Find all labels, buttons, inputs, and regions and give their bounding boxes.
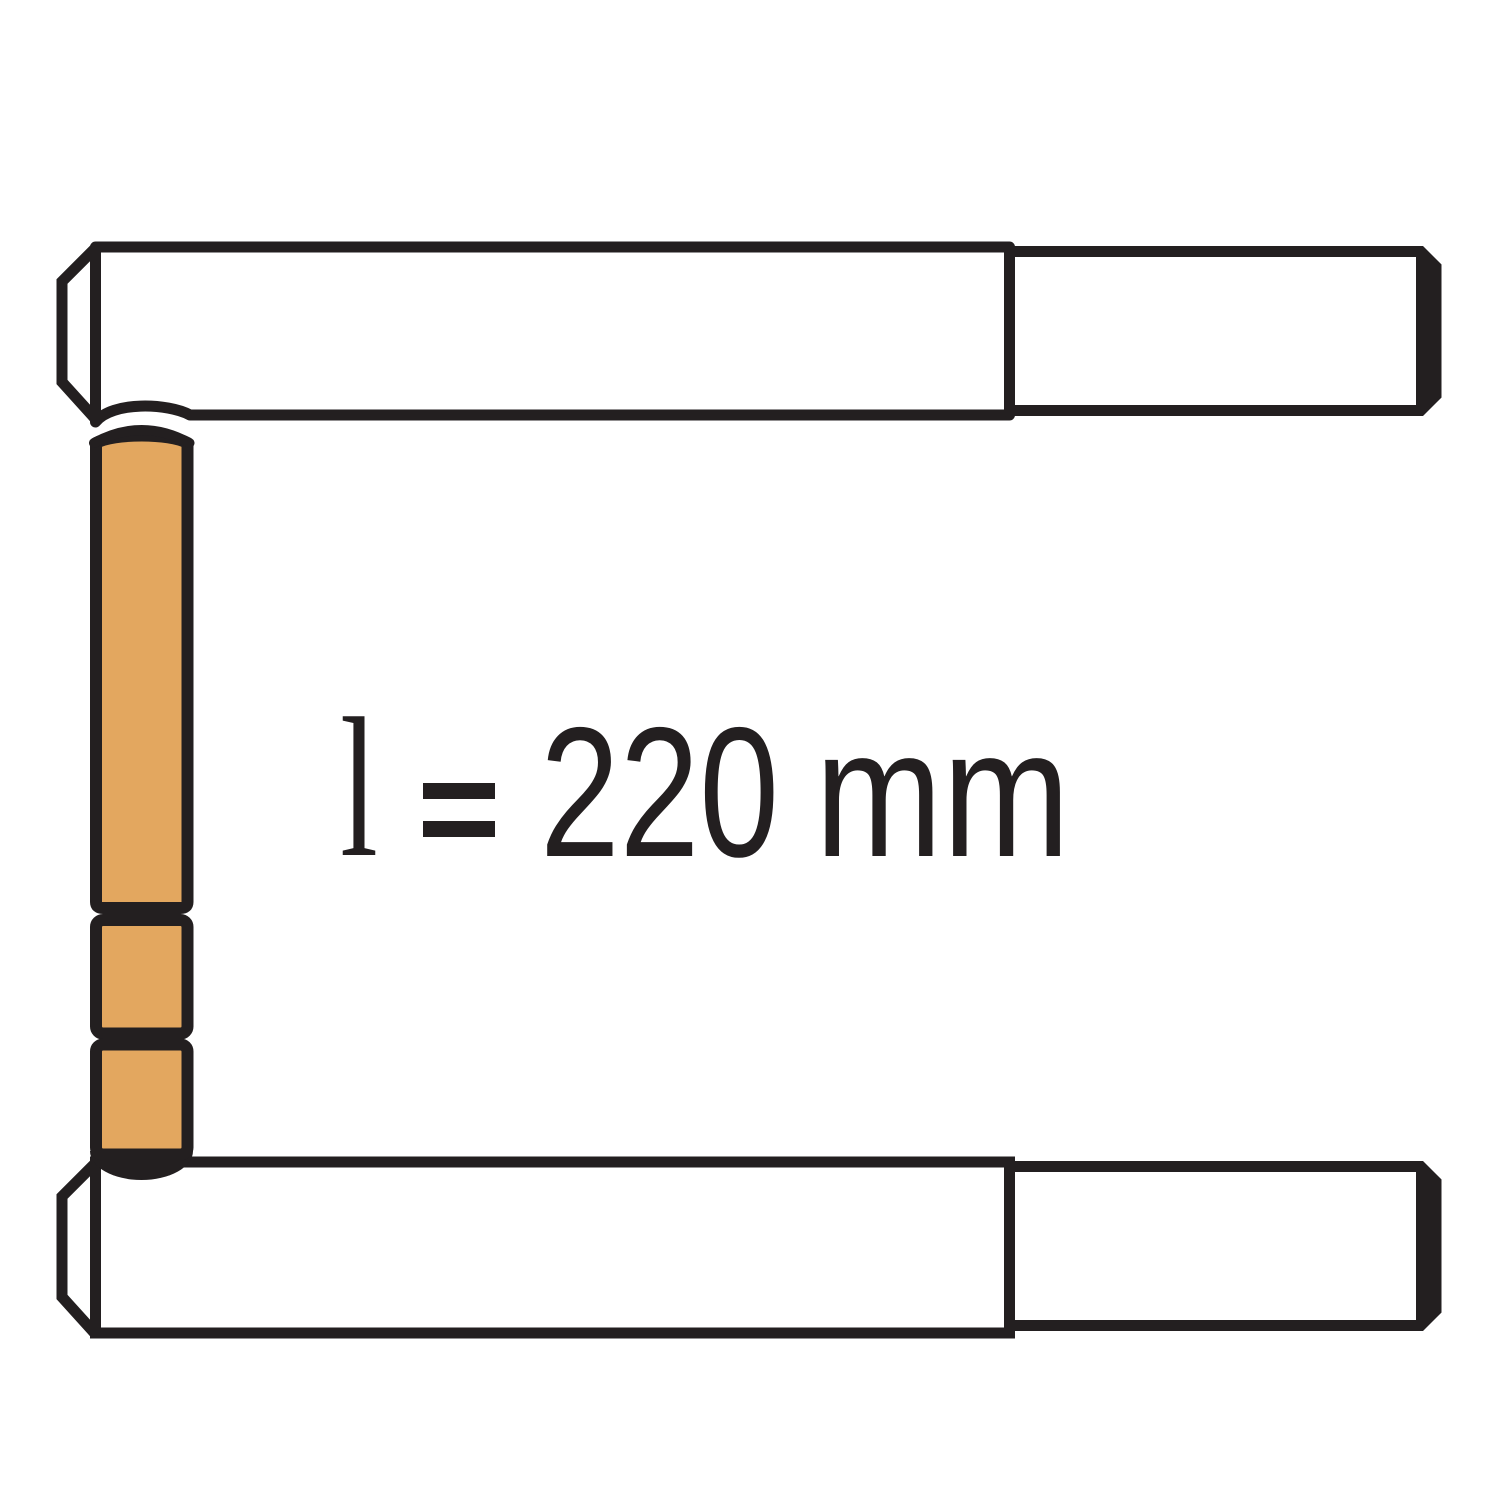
svg-text:mm: mm: [815, 691, 1070, 895]
svg-text:220: 220: [540, 690, 779, 896]
svg-text:l: l: [340, 678, 378, 899]
